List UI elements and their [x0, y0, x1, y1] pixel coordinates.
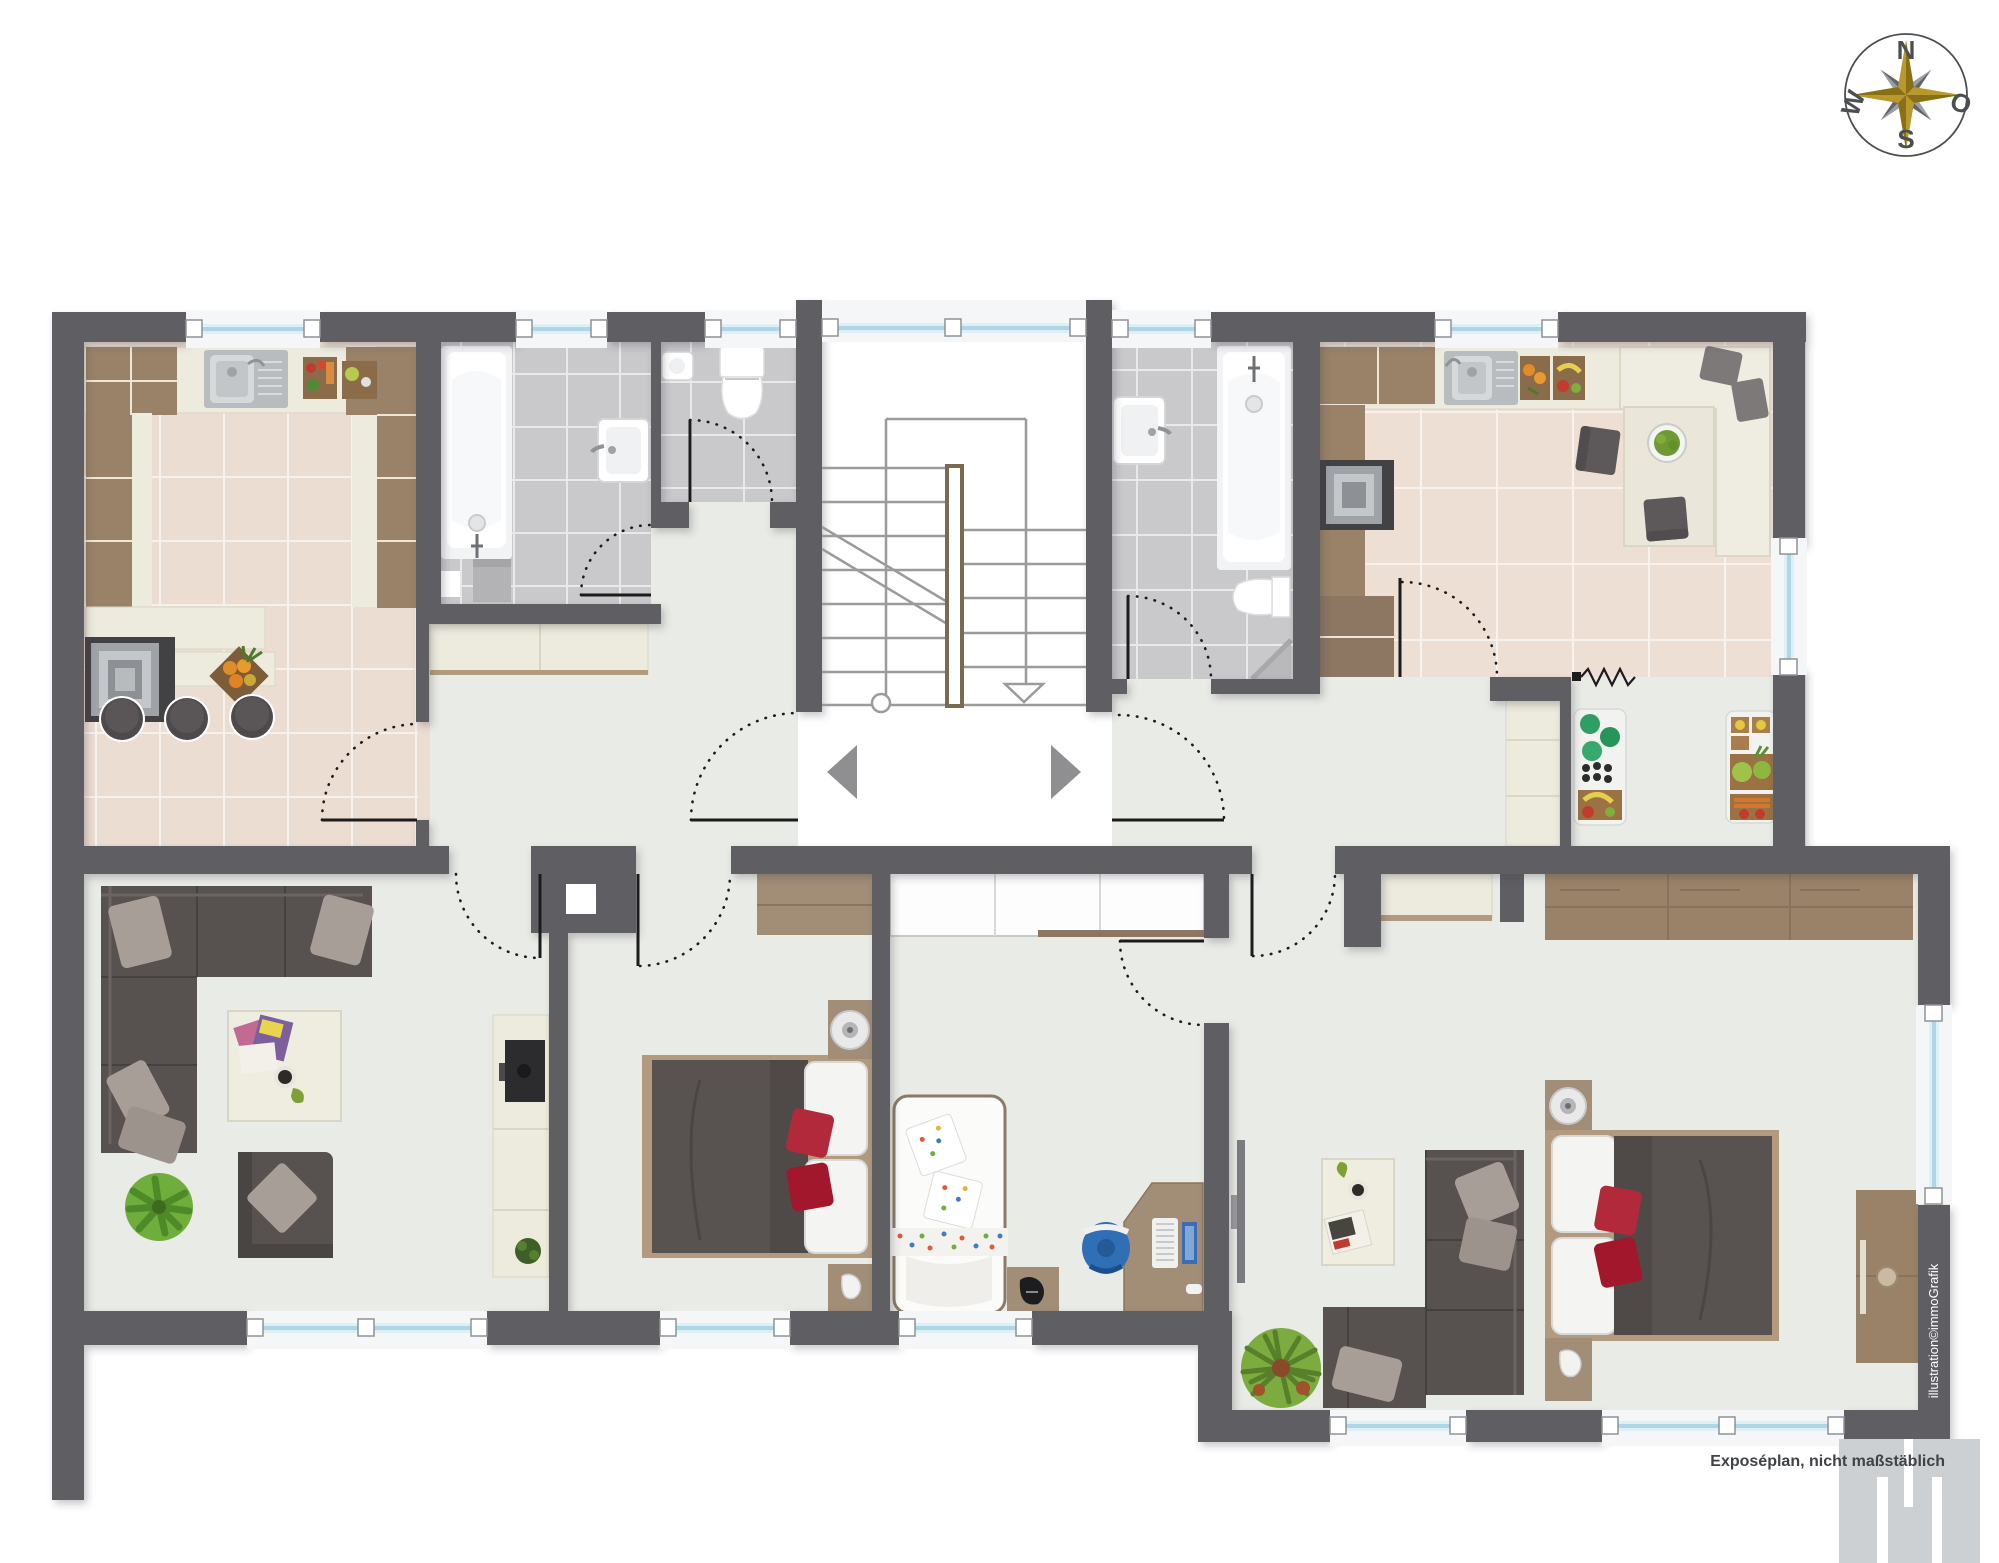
svg-text:N: N — [1897, 35, 1916, 65]
svg-text:S: S — [1897, 124, 1914, 154]
svg-text:illustration©immoGrafik: illustration©immoGrafik — [1926, 1263, 1941, 1398]
svg-text:Exposéplan, nicht maßstäblich: Exposéplan, nicht maßstäblich — [1710, 1453, 1945, 1470]
